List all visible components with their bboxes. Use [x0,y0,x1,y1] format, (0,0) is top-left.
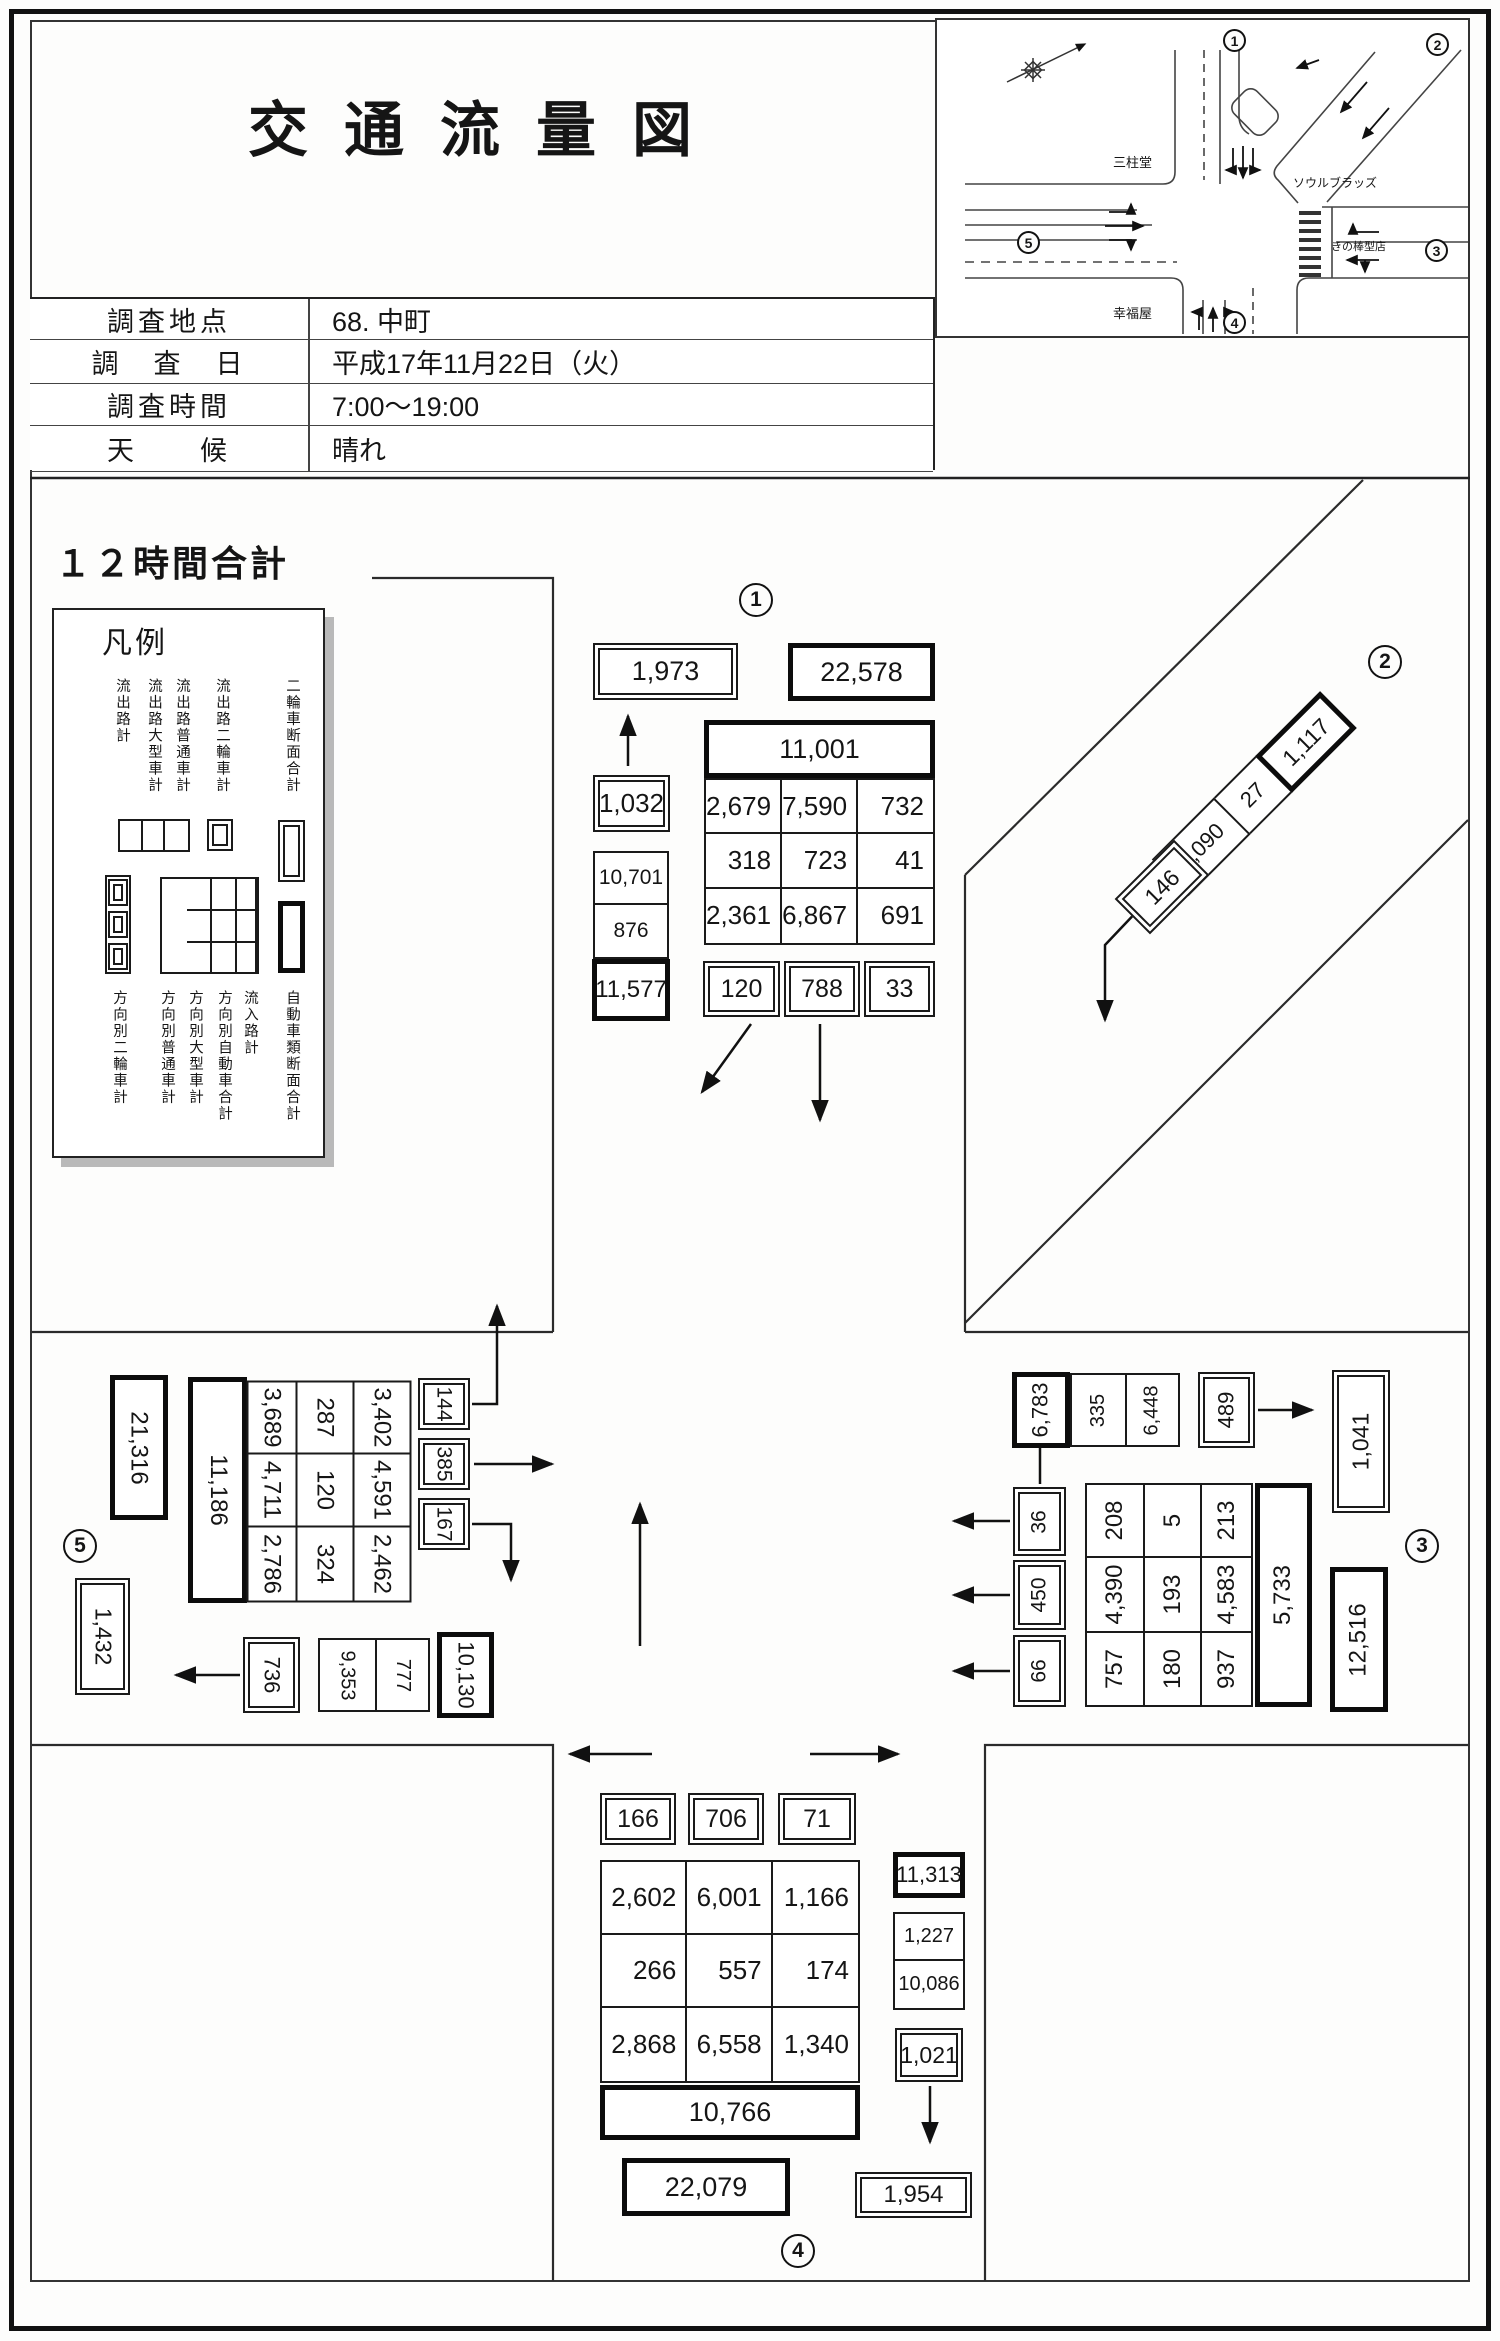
a5-up-arrow [472,1306,497,1404]
legend-title: 凡例 [102,618,168,662]
a4-outflow-total: 11,313 [893,1852,965,1898]
map-junction-3: 3 [1425,239,1448,262]
a3-bike-dir-straight: 450 [1013,1560,1066,1630]
a1-outflow-total: 11,577 [592,959,670,1021]
legend-label: 方向別大型車計 [185,990,206,1106]
a3-outflow-total: 6,783 [1012,1372,1070,1448]
a1-outflow-pair: 10,701 876 [593,851,669,959]
a1-bike-dir-straight: 788 [784,961,860,1017]
location-map: 三柱堂 ソウルブラッズ 幸福屋 きの棒型店 1 2 3 4 5 [935,18,1470,338]
a1-bike-dir-right: 33 [864,961,935,1017]
legend-bike-dir-cell [108,879,128,906]
a5-bike-dir-straight: 385 [418,1438,470,1490]
a3-direction-grid: 7574,390208 1801935 9374,583213 [1085,1483,1253,1707]
building-label-ne: ソウルブラッズ [1293,174,1377,191]
a4-bike-dir-left: 166 [600,1793,676,1845]
legend-label: 流入路計 [240,990,261,1056]
junction-label-2: 2 [1368,645,1402,679]
a4-outflow-pair: 1,227 10,086 [893,1912,965,2010]
location-map-drawing [937,20,1468,336]
a4-direction-grid: 2,6026,0011,166 266557174 2,8686,5581,34… [600,1860,860,2083]
map-junction-1: 1 [1223,29,1246,52]
a5-inflow-total: 11,186 [188,1377,247,1603]
a3-inflow-total: 5,733 [1255,1483,1312,1707]
junction-label-3: 3 [1405,1529,1439,1563]
legend-label: 流出路二輪車計 [212,678,233,794]
junction-label-5: 5 [63,1529,97,1563]
a4-bike-section-total: 1,954 [855,2172,972,2218]
a2-out-arrow [1105,906,1142,1020]
a5-outflow-pair: 9,353 777 [318,1638,430,1712]
map-junction-4: 4 [1223,311,1246,334]
legend-label: 自動車類断面合計 [282,990,303,1122]
map-lane-arrows [1105,60,1389,332]
legend-bike-dir-cell [108,943,128,970]
legend-auto-section-box [278,901,305,973]
a5-bike-dir-right: 144 [418,1378,470,1430]
a5-bike-outflow: 736 [243,1637,300,1713]
a4-auto-section-total: 22,079 [622,2158,790,2216]
a1-bike-outflow: 1,032 [593,775,670,832]
legend-bike-dir-cell [108,911,128,938]
legend-bike-out-box [207,819,233,851]
a3-outflow-pair: 335 6,448 [1070,1373,1180,1447]
map-junction-5: 5 [1017,231,1040,254]
a4-bike-dir-straight: 706 [688,1793,764,1845]
compass-icon [1007,44,1085,82]
legend-label: 流出路普通車計 [172,678,193,794]
legend-label: 流出路計 [112,678,133,744]
building-label-se: きの棒型店 [1331,238,1386,254]
crosswalk-icon [1299,213,1321,275]
a5-outflow-total: 10,130 [437,1632,494,1718]
a4-inflow-total: 10,766 [600,2085,860,2140]
a3-bike-section-total: 1,041 [1332,1370,1390,1513]
legend-label: 方向別二輪車計 [109,990,130,1106]
a5-bike-section-total: 1,432 [75,1578,130,1695]
junction-label-1: 1 [739,583,773,617]
legend-label: 二輪車断面合計 [282,678,303,794]
a1-down-left-arrow [702,1024,751,1092]
a5-auto-section-total: 21,316 [110,1375,168,1520]
map-junction-2: 2 [1426,33,1449,56]
legend-direction-grid [160,877,259,974]
a5-down-arrow [472,1524,511,1580]
a3-auto-section-total: 12,516 [1330,1567,1388,1712]
legend-label: 方向別普通車計 [157,990,178,1106]
legend-label: 流出路大型車計 [144,678,165,794]
a4-bike-dir-right: 71 [778,1793,856,1845]
a3-bike-outflow: 489 [1198,1372,1255,1448]
junction-label-4: 4 [781,2234,815,2268]
a4-bike-outflow: 1,021 [895,2028,963,2082]
building-label-nw: 三柱堂 [1113,152,1152,171]
legend-bike-section-box [278,820,305,882]
legend-box: 凡例 流出路計 流出路大型車計 流出路普通車計 流出路二輪車計 二輪車断面合計 … [52,608,325,1158]
a3-bike-dir-right: 66 [1013,1635,1066,1707]
a3-bike-dir-left: 36 [1013,1487,1066,1556]
legend-label: 方向別自動車合計 [214,990,235,1122]
traffic-flow-sheet: 交通流量図 調査地点 68. 中町 調 査 日 平成17年11月22日（火） 調… [0,0,1500,2341]
a5-direction-grid: 3,4024,5912,462 287120324 3,6894,7112,78… [247,1381,412,1603]
a1-direction-grid: 2,6797,590732 31872341 2,3616,867691 [704,778,935,945]
a5-bike-dir-left: 167 [418,1498,470,1550]
legend-outflow-box [118,819,190,852]
a1-inflow-total: 11,001 [704,720,935,778]
a1-auto-section-total: 22,578 [788,643,935,701]
a1-bike-section-total: 1,973 [593,643,738,700]
a1-bike-dir-left: 120 [703,961,780,1017]
building-label-sw: 幸福屋 [1113,303,1152,322]
